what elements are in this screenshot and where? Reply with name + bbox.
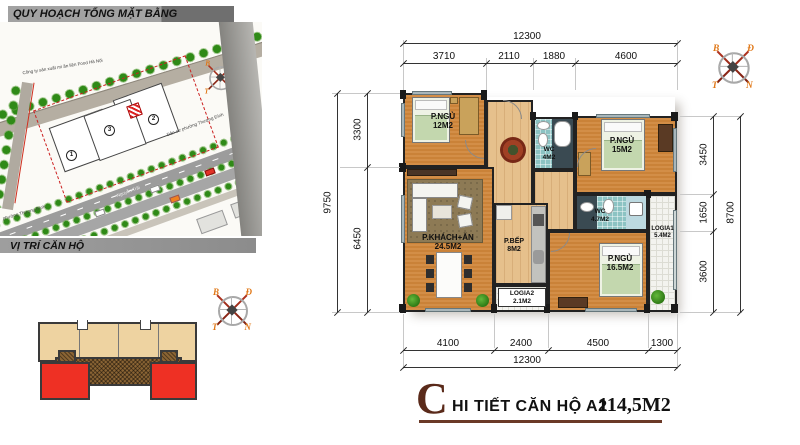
dim-top-3: 1880 (529, 51, 579, 62)
tv-cabinet (407, 169, 457, 176)
room-area: 5.4M2 (647, 233, 678, 240)
extension-line (677, 40, 678, 90)
wash-basin (537, 121, 550, 130)
dim-line-bottom-segments (403, 350, 677, 351)
floor-medallion (500, 137, 526, 163)
room-area: 4.7M2 (580, 216, 620, 224)
plant (476, 294, 489, 307)
toilet (538, 133, 548, 147)
room-area: 8M2 (496, 246, 532, 254)
room-area: 15M2 (592, 145, 652, 154)
compass-west-label: T (712, 80, 718, 91)
dim-line-top-total (403, 43, 677, 44)
room-area: 16.5M2 (592, 263, 648, 272)
extension-line (340, 167, 400, 168)
compass-south-label: N (746, 80, 753, 91)
dresser (558, 297, 588, 308)
header-location-label: VỊ TRÍ CĂN HỘ (10, 240, 84, 252)
dim-top-2: 2110 (484, 51, 534, 62)
compass-north-label: B (713, 43, 719, 54)
compass-north-label: B (205, 59, 210, 67)
dim-right-1: 3450 (699, 135, 710, 175)
label-bedroom1: P.NGỦ 12M2 (413, 112, 473, 131)
chair (426, 255, 434, 264)
dim-right-total: 8700 (726, 193, 737, 233)
wall-column (481, 90, 487, 100)
highlighted-unit-right (150, 362, 197, 400)
title-area: 114,5M2 (598, 394, 671, 417)
plant (651, 290, 665, 304)
chair (426, 269, 434, 278)
window (412, 91, 452, 95)
compass-west-label: T (204, 87, 208, 95)
label-kitchen: P.BẾP 8M2 (496, 238, 532, 255)
window (596, 114, 650, 118)
fridge (496, 205, 512, 220)
label-bedroom3: P.NGỦ 16.5M2 (592, 254, 648, 273)
room-name: P.NGỦ (592, 136, 652, 145)
slab-notch (77, 320, 88, 330)
dim-left-1: 3300 (353, 110, 364, 150)
header-master-plan-label: QUY HOẠCH TỔNG MẶT BẰNG (13, 8, 177, 20)
chair (426, 283, 434, 292)
label-logia1: LOGIA1 5.4M2 (647, 226, 678, 240)
extension-line (680, 194, 715, 195)
sofa (412, 198, 427, 232)
bathtub (554, 121, 571, 147)
extension-line (680, 231, 715, 232)
unit-divider (158, 324, 159, 360)
stove (533, 214, 544, 226)
plant (407, 294, 420, 307)
logia-railing (673, 210, 677, 290)
window (401, 103, 405, 137)
label-wc2: WC 4.7M2 (580, 208, 620, 223)
dim-tick (737, 309, 744, 316)
dim-top-total: 12300 (497, 31, 557, 42)
house-footprint (196, 210, 228, 235)
room-name: P.NGỦ (413, 112, 473, 121)
site-plan-image: Nguyễn Trãi 1 2 3 Công ty sản xuất mì ăn… (0, 22, 262, 236)
dim-bottom-3: 4500 (573, 338, 623, 349)
dim-top-4: 4600 (601, 51, 651, 62)
window (673, 128, 677, 172)
unit-divider (118, 324, 119, 360)
compass-east-label: Đ (747, 43, 754, 54)
dim-line-right-segments (713, 116, 714, 312)
highlighted-unit-left (40, 362, 90, 400)
building-number-2: 2 (148, 114, 159, 125)
header-master-plan: QUY HOẠCH TỔNG MẶT BẰNG (8, 6, 234, 22)
room-name: P.BẾP (496, 238, 532, 246)
dim-line-left-segments (367, 93, 368, 312)
wall-column (671, 304, 678, 313)
wall-column (399, 304, 406, 313)
dim-tick (674, 364, 681, 371)
dim-line-bottom-total (403, 367, 677, 368)
header-location: VỊ TRÍ CĂN HỘ (0, 238, 256, 253)
desk (658, 124, 673, 152)
chair (464, 269, 472, 278)
slab-notch (140, 320, 151, 330)
label-living: P.KHÁCH+ĂN 24.5M2 (408, 233, 488, 252)
title-text: HI TIẾT CĂN HỘ A2 (452, 398, 607, 416)
extension-line (403, 40, 404, 90)
room-name: WC (534, 146, 564, 154)
armchair (457, 195, 473, 211)
compass-west-label: T (212, 322, 218, 332)
washing-machine (629, 202, 643, 216)
extension-line (548, 314, 549, 348)
room-name: WC (580, 208, 620, 216)
sink (533, 250, 544, 264)
window (425, 308, 471, 312)
wall-column (400, 90, 406, 99)
wall-column (491, 304, 497, 313)
room-area: 24.5M2 (408, 242, 488, 251)
wall-column (671, 112, 678, 121)
dim-bottom-total: 12300 (497, 355, 557, 366)
compass-rose-sketch: B Đ T N (214, 292, 250, 328)
chair (464, 255, 472, 264)
label-wc1: WC 4M2 (534, 146, 564, 161)
dim-line-left-total (337, 93, 338, 312)
wall-column (399, 163, 406, 172)
dim-right-2: 1650 (699, 193, 710, 233)
dim-left-total: 9750 (323, 183, 334, 223)
wall-column (530, 112, 536, 120)
extension-line (403, 314, 404, 369)
photo-edge-shadow (219, 22, 262, 236)
dim-bottom-2: 2400 (496, 338, 546, 349)
dim-line-top-segments (403, 63, 677, 64)
room-area: 4M2 (534, 154, 564, 162)
compass-rose-plan: B Đ T N (714, 48, 752, 86)
armchair (457, 213, 473, 228)
title-drop-cap: C (416, 380, 448, 418)
coffee-table (432, 205, 452, 219)
compass-north-label: B (213, 287, 219, 297)
nightstand (450, 97, 458, 104)
compass-east-label: Đ (246, 287, 253, 297)
room-area: 2.1M2 (499, 298, 545, 306)
unit-location-sketch: B Đ T N (0, 256, 262, 416)
label-logia2: LOGIA2 2.1M2 (498, 288, 546, 307)
page: Nguyễn Trãi 1 2 3 Công ty sản xuất mì ăn… (0, 0, 800, 445)
dim-bottom-1: 4100 (418, 338, 478, 349)
window (585, 308, 637, 312)
dim-line-right-total (740, 116, 741, 312)
extension-line (494, 314, 495, 348)
dim-bottom-4: 1300 (640, 338, 684, 349)
company-label: Công ty sản xuất mì ăn liền Food Hà Nội (22, 58, 103, 76)
room-name: P.KHÁCH+ĂN (408, 233, 488, 242)
chair (464, 283, 472, 292)
wall-column (644, 304, 650, 313)
dim-top-1: 3710 (414, 51, 474, 62)
building-number-1: 1 (66, 150, 77, 161)
label-bedroom2: P.NGỦ 15M2 (592, 136, 652, 155)
room-area: 12M2 (413, 121, 473, 130)
window (401, 195, 405, 243)
sofa (412, 183, 458, 198)
room-name: P.NGỦ (592, 254, 648, 263)
dining-table (436, 252, 462, 298)
title-underline (419, 420, 662, 423)
dim-right-3: 3600 (699, 252, 710, 292)
room-name: LOGIA1 (647, 226, 678, 233)
building-number-3: 3 (104, 125, 115, 136)
room-name: LOGIA2 (499, 290, 545, 298)
compass-south-label: N (245, 322, 252, 332)
dim-left-2: 6450 (353, 219, 364, 259)
